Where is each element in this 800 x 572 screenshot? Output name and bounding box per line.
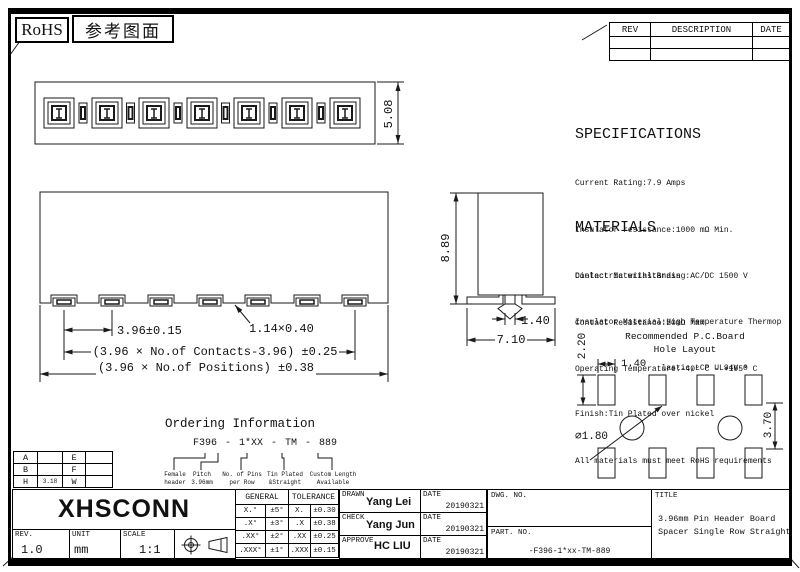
pcb-row-spacing-dim: 3.70 [763, 412, 775, 438]
company-logo: XHSCONN [58, 495, 190, 524]
connector-side-view [435, 186, 590, 356]
dim-key-cell [86, 476, 112, 487]
dim-key-cell [38, 452, 62, 463]
connector-top-view [33, 76, 408, 154]
drawn-label: DRAWN [342, 491, 365, 499]
rev-table-cell [753, 49, 789, 60]
peg-holes [620, 416, 742, 440]
check-name: Yang Jun [366, 519, 415, 531]
scale-value: 1:1 [139, 543, 161, 557]
signoff-table: DRAWN Yang Lei DATE 20190321 CHECK Yang … [339, 489, 487, 559]
rohs-badge-label: RoHS [21, 20, 63, 40]
material-line: Insulator Material:High Temperature Ther… [575, 315, 781, 330]
dwg-no-cell: DWG. NO. [487, 489, 652, 527]
dim-key-cell [86, 452, 112, 463]
right-foot [522, 295, 555, 304]
dim-key-cell: E [63, 452, 85, 463]
ordering-legend-length: Custom LengthAvailable [304, 471, 362, 487]
side-view-height-dim: 8.89 [439, 234, 453, 263]
drawn-date: 20190321 [446, 502, 484, 511]
drawing-title-line1: 3.96mm Pin Header Board [658, 514, 775, 524]
tolerance-cell: .XX° [236, 531, 265, 543]
ordering-legend-plating: Tin Plated&Straight [261, 471, 309, 487]
front-view-positions-dim: (3.96 × No.of Positions) ±0.38 [66, 361, 346, 375]
spec-line: Current Rating:7.9 Amps [575, 176, 757, 192]
ordering-legend-pitch: Pitch3.96mm [183, 471, 221, 487]
title-cell: TITLE 3.96mm Pin Header Board Spacer Sin… [651, 489, 790, 559]
approve-name: HC LIU [374, 540, 411, 552]
dim-key-cell: H [14, 476, 37, 487]
tolerance-cell: ±5° [266, 505, 288, 517]
title-label: TITLE [655, 492, 678, 500]
dim-key-cell [38, 464, 62, 475]
scale-cell: SCALE 1:1 [120, 529, 175, 559]
tolerance-cell: ±1° [266, 544, 288, 557]
revision-table: REV DESCRIPTION DATE [609, 22, 790, 61]
rev-table-header: DESCRIPTION [651, 23, 752, 36]
approve-label: APPROVE [342, 537, 374, 545]
rev-table-header: DATE [753, 23, 789, 36]
rev-table-cell [651, 37, 752, 48]
engineering-drawing-page: RoHS 参考图面 REV DESCRIPTION DATE [0, 0, 800, 572]
rohs-badge: RoHS [15, 17, 69, 43]
pcb-layout-title: Recommended P.C.Board Hole Layout [595, 330, 775, 356]
logo-cell: XHSCONN [12, 489, 236, 530]
part-no-cell: PART. NO. -F396-1*xx-TM-889 [487, 526, 652, 559]
reference-drawing-badge: 参考图面 [72, 15, 174, 43]
tolerance-header: GENERAL [236, 490, 288, 504]
cone-projection-icon [209, 538, 227, 553]
ordering-title: Ordering Information [150, 417, 330, 431]
reference-drawing-label: 参考图面 [85, 17, 161, 42]
pcb-vertical-dim: 2.20 [577, 333, 589, 359]
unit-label: UNIT [72, 531, 90, 539]
rev-table-cell [753, 37, 789, 48]
tolerance-cell: ±0.38 [311, 518, 338, 530]
rev-table-header: REV [610, 23, 650, 36]
tolerance-cell: .X° [236, 518, 265, 530]
tolerance-cell: .XXX° [236, 544, 265, 557]
rev-table-cell [610, 37, 650, 48]
dim-key-cell: A [14, 452, 37, 463]
date-label: DATE [423, 537, 441, 545]
rev-label: REV. [15, 531, 33, 539]
dim-key-cell: F [63, 464, 85, 475]
dim-key-cell [86, 464, 112, 475]
rev-table-cell [610, 49, 650, 60]
projection-symbol-cell [174, 529, 236, 559]
dim-key-cell: 3.18 [38, 476, 62, 487]
side-view-width-dim: 7.10 [491, 333, 531, 347]
tolerance-cell: ±2° [266, 531, 288, 543]
date-label: DATE [423, 491, 441, 499]
material-line: Contact Material:Brass [575, 269, 781, 284]
drawn-name: Yang Lei [366, 496, 411, 508]
front-view-pin-dim: 1.14×0.40 [249, 322, 314, 336]
snap-peg [498, 304, 522, 319]
dwg-no-label: DWG. NO. [491, 492, 527, 500]
materials-title: MATERIALS [575, 219, 656, 236]
dimension-key-table: A E B F H 3.18 W [13, 451, 113, 488]
tolerance-cell: X. [289, 505, 310, 517]
tolerance-header: TOLERANCE [289, 490, 338, 504]
contact-pins [53, 298, 366, 306]
projection-icons [181, 535, 231, 555]
specifications-title: SPECIFICATIONS [575, 126, 701, 143]
tolerance-cell: .X [289, 518, 310, 530]
tolerance-table: GENERAL TOLERANCE X.° ±5° X. ±0.30 .X° ±… [235, 489, 339, 558]
dim-key-cell: W [63, 476, 85, 487]
approve-date: 20190321 [446, 548, 484, 557]
target-projection-icon [182, 536, 201, 555]
drawing-title-line2: Spacer Single Row Straight [658, 527, 791, 537]
top-view-height-dim: 5.08 [382, 100, 396, 129]
part-no-label: PART. NO. [491, 529, 532, 537]
unit-cell: UNIT mm [69, 529, 121, 559]
dim-key-cell: B [14, 464, 37, 475]
scale-label: SCALE [123, 531, 146, 539]
front-view-contacts-dim: (3.96 × No.of Contacts-3.96) ±0.25 [75, 345, 355, 359]
hole-rectangles [598, 375, 762, 478]
pcb-hole-width-dim: 1.40 [621, 358, 646, 370]
date-label: DATE [423, 514, 441, 522]
tolerance-cell: .XXX [289, 544, 310, 557]
check-date: 20190321 [446, 525, 484, 534]
rev-cell: REV. 1.0 [12, 529, 70, 559]
rev-value: 1.0 [21, 543, 43, 557]
front-view-pitch-dim: 3.96±0.15 [117, 324, 182, 338]
tolerance-cell: ±0.25 [311, 531, 338, 543]
left-foot [467, 295, 503, 304]
unit-value: mm [74, 543, 88, 557]
rev-table-cell [651, 49, 752, 60]
part-no-value: -F396-1*xx-TM-889 [488, 547, 651, 556]
tolerance-cell: ±0.30 [311, 505, 338, 517]
tolerance-cell: X.° [236, 505, 265, 517]
side-view-peg-dim: 1.40 [521, 314, 550, 328]
ordering-legend-pins: No. of Pinsper Row [217, 471, 267, 487]
tolerance-cell: ±0.15 [311, 544, 338, 557]
pcb-diameter-dim: ∅1.80 [575, 429, 608, 443]
tolerance-cell: .XX [289, 531, 310, 543]
check-label: CHECK [342, 514, 365, 522]
tolerance-cell: ±3° [266, 518, 288, 530]
pcb-hole-layout [572, 356, 790, 486]
